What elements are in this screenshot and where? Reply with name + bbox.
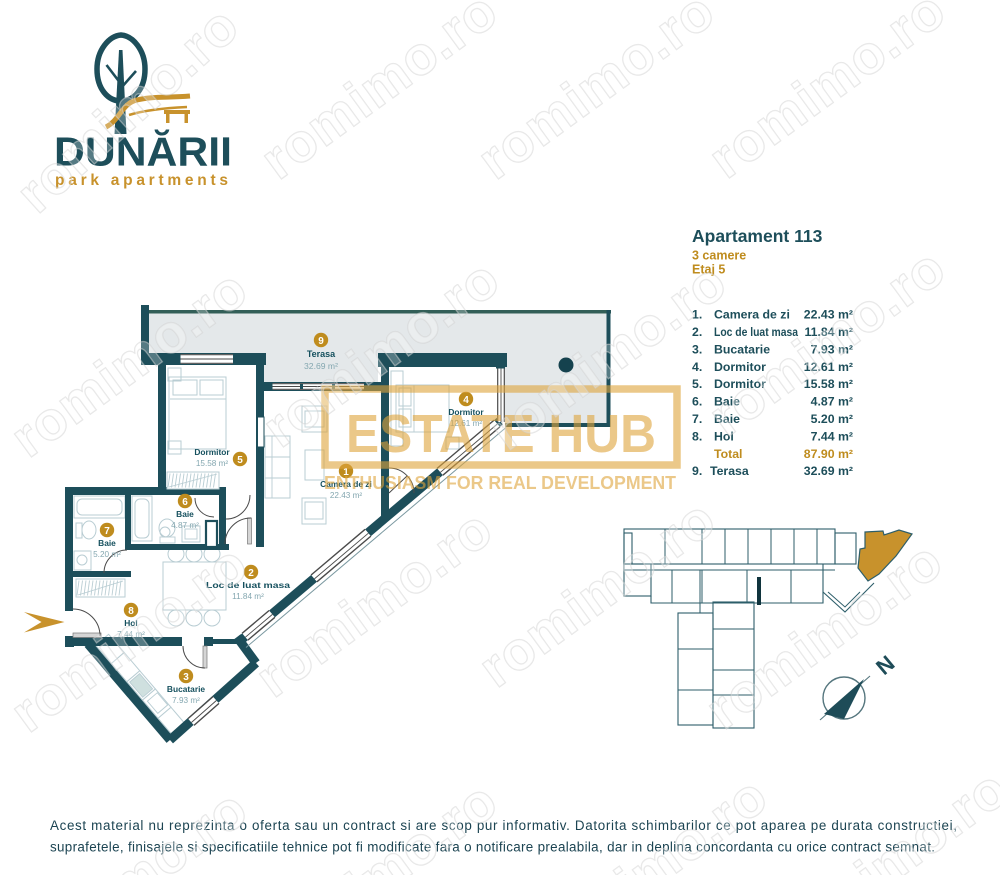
- svg-text:15.58 m²: 15.58 m²: [196, 459, 229, 468]
- svg-text:5.20 m²: 5.20 m²: [93, 550, 121, 559]
- svg-text:Baie: Baie: [98, 538, 116, 548]
- svg-text:Apartament 113: Apartament 113: [692, 226, 823, 246]
- svg-text:5.: 5.: [692, 377, 702, 391]
- svg-text:3.: 3.: [692, 342, 702, 356]
- svg-text:5: 5: [237, 455, 243, 466]
- svg-text:6: 6: [182, 497, 188, 508]
- svg-text:Dormitor: Dormitor: [194, 447, 230, 457]
- svg-text:9.: 9.: [692, 464, 702, 478]
- svg-text:Camera de zi: Camera de zi: [714, 308, 790, 322]
- svg-text:4.: 4.: [692, 360, 702, 374]
- svg-text:4.87 m²: 4.87 m²: [171, 521, 199, 530]
- svg-text:8.: 8.: [692, 429, 702, 443]
- svg-text:87.90 m²: 87.90 m²: [804, 447, 853, 461]
- svg-text:Terasa: Terasa: [710, 464, 749, 478]
- svg-text:7.93 m²: 7.93 m²: [172, 696, 200, 705]
- svg-text:7: 7: [104, 526, 110, 537]
- svg-text:7.: 7.: [692, 412, 702, 426]
- svg-text:7.44 m²: 7.44 m²: [811, 429, 853, 443]
- svg-text:5.20 m²: 5.20 m²: [811, 412, 853, 426]
- svg-text:4.87 m²: 4.87 m²: [811, 395, 853, 409]
- svg-text:Bucatarie: Bucatarie: [167, 684, 206, 694]
- svg-text:32.69 m²: 32.69 m²: [804, 464, 853, 478]
- svg-text:ENTHUSIASM FOR REAL DEVELOPMEN: ENTHUSIASM FOR REAL DEVELOPMENT: [324, 472, 677, 493]
- svg-text:Total: Total: [714, 447, 742, 461]
- svg-text:9: 9: [318, 336, 324, 347]
- svg-text:3: 3: [183, 672, 189, 683]
- svg-text:Baie: Baie: [176, 509, 194, 519]
